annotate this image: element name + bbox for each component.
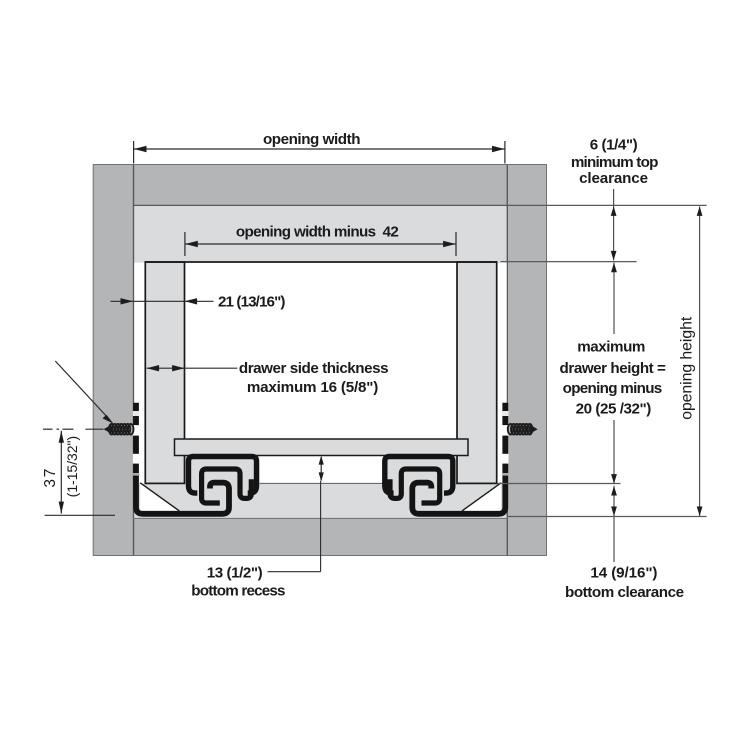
svg-text:opening width minus 42: opening width minus 42 [236, 224, 398, 241]
svg-text:maximum 16 (5/8"): maximum 16 (5/8") [247, 379, 378, 396]
svg-text:bottom recess: bottom recess [191, 583, 285, 600]
svg-text:bottom clearance: bottom clearance [565, 584, 684, 601]
svg-text:drawer height =: drawer height = [560, 360, 666, 377]
svg-text:37: 37 [42, 467, 59, 488]
svg-text:20 (25 /32"): 20 (25 /32") [576, 401, 652, 418]
svg-text:maximum: maximum [577, 339, 645, 356]
svg-text:minimum top: minimum top [571, 154, 658, 171]
svg-text:14 (9/16"): 14 (9/16") [590, 565, 657, 582]
svg-text:opening height: opening height [678, 316, 695, 420]
svg-text:6 (1/4"): 6 (1/4") [590, 137, 638, 154]
svg-text:drawer side thickness: drawer side thickness [239, 360, 388, 377]
svg-text:(1-15/32"): (1-15/32") [65, 436, 81, 497]
svg-text:opening width: opening width [263, 131, 360, 148]
svg-text:13 (1/2"): 13 (1/2") [207, 564, 263, 581]
svg-text:opening minus: opening minus [563, 380, 662, 397]
svg-text:clearance: clearance [579, 170, 648, 187]
svg-text:21 (13/16"): 21 (13/16") [218, 294, 285, 311]
